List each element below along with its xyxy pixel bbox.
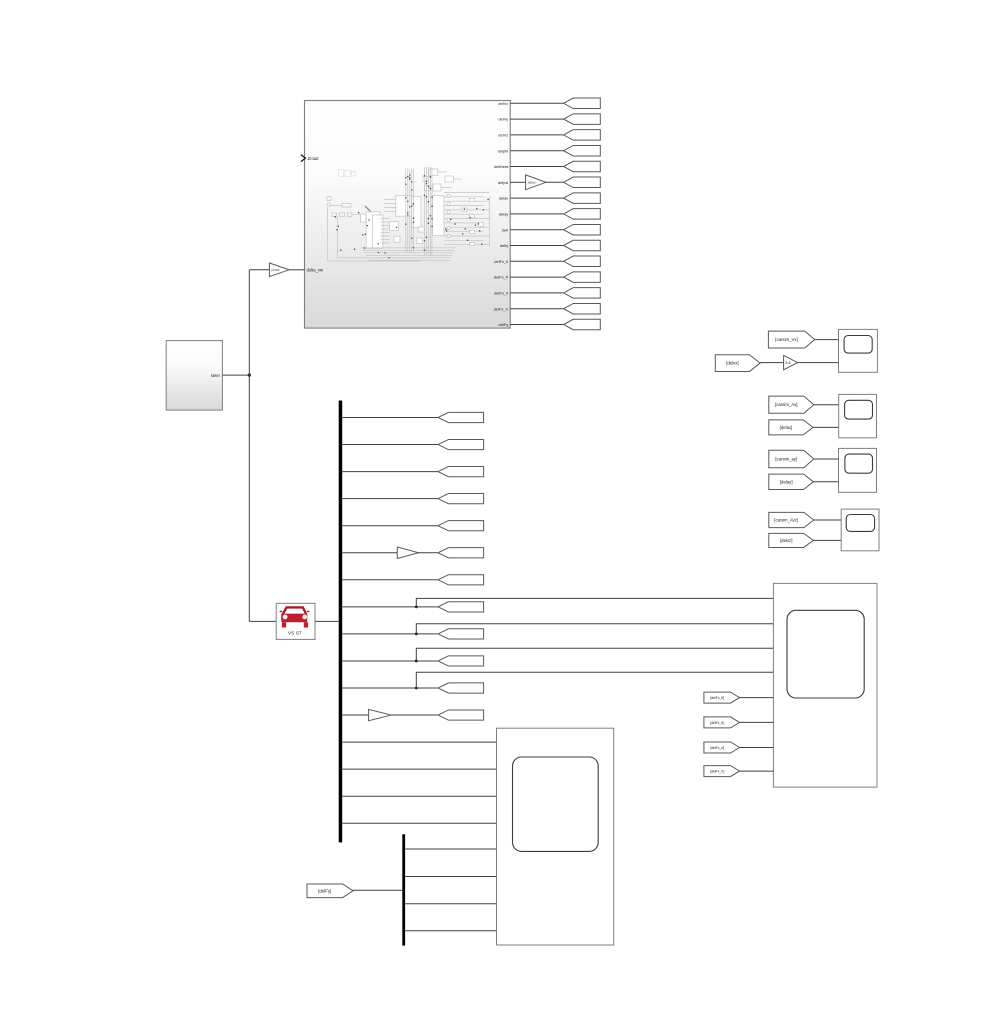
svg-text:[delvz]: [delvz] xyxy=(780,538,792,543)
svg-text:delVz: delVz xyxy=(498,133,508,138)
svg-text:[carsim_AVz]: [carsim_AVz] xyxy=(774,518,798,523)
svg-text:delFx_rl: delFx_rl xyxy=(494,291,508,296)
svg-text:delfy: delfy xyxy=(500,243,508,248)
svg-text:[carsim_Vx]: [carsim_Vx] xyxy=(775,337,797,342)
svg-text:delVx: delVx xyxy=(498,101,508,106)
svg-text:180/pi: 180/pi xyxy=(527,181,536,185)
svg-text:delpsi: delpsi xyxy=(498,180,509,185)
svg-text:[delFx_fl]: [delFx_fl] xyxy=(710,696,724,700)
svg-text:delFx_rr: delFx_rr xyxy=(494,306,509,311)
svg-text:delFy: delFy xyxy=(499,322,509,327)
svg-text:delVy: delVy xyxy=(498,117,508,122)
svg-text:delax: delax xyxy=(499,196,509,201)
svg-text:[delFy]: [delFy] xyxy=(318,888,331,893)
svg-text:[delay]: [delay] xyxy=(780,479,793,484)
svg-text:delta_vw: delta_vw xyxy=(307,268,325,273)
svg-text:deltheta: deltheta xyxy=(494,164,509,169)
svg-text:[delFx_fr]: [delFx_fr] xyxy=(710,721,724,725)
svg-text:[delFx_rr]: [delFx_rr] xyxy=(710,770,724,774)
svg-text:pi/180: pi/180 xyxy=(271,268,280,272)
svg-text:[delFx_rl]: [delFx_rl] xyxy=(710,746,724,750)
svg-text:[delax]: [delax] xyxy=(780,425,793,430)
svg-text:Zroad: Zroad xyxy=(308,156,320,161)
svg-text:steer: steer xyxy=(211,373,221,378)
svg-text:delay: delay xyxy=(499,212,509,217)
svg-text:delFx_fr: delFx_fr xyxy=(494,275,509,280)
svg-text:delphi: delphi xyxy=(498,148,509,153)
svg-text:delFx_fl: delFx_fl xyxy=(494,259,508,264)
svg-text:delr: delr xyxy=(502,227,509,232)
svg-text:[carsim_ay]: [carsim_ay] xyxy=(775,457,797,462)
svg-text:3.6: 3.6 xyxy=(785,361,790,365)
svg-text:VS S7: VS S7 xyxy=(288,631,302,637)
svg-text:[delvx]: [delvx] xyxy=(726,361,738,366)
svg-text:[carsim_Ax]: [carsim_Ax] xyxy=(775,402,797,407)
